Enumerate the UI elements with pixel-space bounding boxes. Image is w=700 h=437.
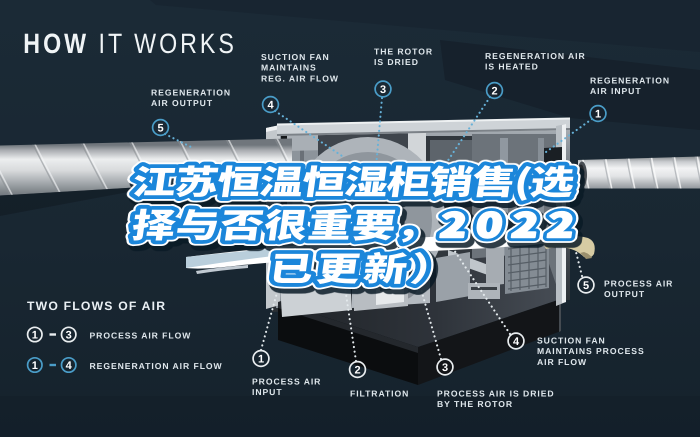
svg-text:5: 5 [583, 280, 589, 292]
svg-text:REGENERATION: REGENERATION [590, 76, 670, 86]
svg-text:REGENERATION: REGENERATION [151, 88, 231, 98]
svg-text:FILTRATION: FILTRATION [350, 389, 409, 399]
svg-text:5: 5 [157, 122, 163, 134]
svg-text:HOW IT WORKS: HOW IT WORKS [23, 28, 237, 59]
svg-text:IS DRIED: IS DRIED [374, 57, 419, 67]
svg-text:THE ROTOR: THE ROTOR [374, 47, 433, 57]
svg-text:PROCESS AIR: PROCESS AIR [252, 377, 321, 387]
svg-text:REGENERATION AIR: REGENERATION AIR [485, 51, 586, 61]
svg-text:1: 1 [32, 360, 38, 372]
svg-text:MAINTAINS PROCESS: MAINTAINS PROCESS [537, 346, 645, 356]
svg-text:REG. AIR FLOW: REG. AIR FLOW [261, 73, 339, 83]
svg-text:OUTPUT: OUTPUT [604, 289, 645, 299]
svg-text:AIR OUTPUT: AIR OUTPUT [151, 98, 213, 108]
svg-text:AIR INPUT: AIR INPUT [590, 86, 642, 96]
svg-text:4: 4 [66, 360, 73, 372]
svg-text:4: 4 [513, 336, 520, 348]
svg-text:SUCTION FAN: SUCTION FAN [261, 52, 330, 62]
svg-text:SUCTION FAN: SUCTION FAN [537, 336, 606, 346]
svg-text:PROCESS AIR IS DRIED: PROCESS AIR IS DRIED [437, 389, 555, 399]
svg-text:BY THE ROTOR: BY THE ROTOR [437, 399, 513, 409]
svg-text:3: 3 [442, 362, 448, 374]
svg-text:1: 1 [258, 353, 264, 365]
svg-text:3: 3 [66, 329, 72, 341]
svg-text:IS HEATED: IS HEATED [485, 62, 539, 72]
svg-text:1: 1 [595, 108, 601, 120]
svg-text:2: 2 [354, 364, 360, 376]
svg-text:4: 4 [267, 99, 274, 111]
svg-text:PROCESS AIR FLOW: PROCESS AIR FLOW [90, 331, 192, 341]
svg-text:2: 2 [491, 85, 497, 97]
svg-text:TWO FLOWS OF AIR: TWO FLOWS OF AIR [27, 299, 166, 313]
svg-text:REGENERATION AIR FLOW: REGENERATION AIR FLOW [90, 361, 223, 371]
svg-text:MAINTAINS: MAINTAINS [261, 63, 317, 73]
svg-text:PROCESS AIR: PROCESS AIR [604, 279, 673, 289]
svg-text:3: 3 [380, 84, 386, 96]
svg-text:INPUT: INPUT [252, 387, 283, 397]
svg-text:1: 1 [32, 329, 38, 341]
svg-text:AIR FLOW: AIR FLOW [537, 357, 587, 367]
